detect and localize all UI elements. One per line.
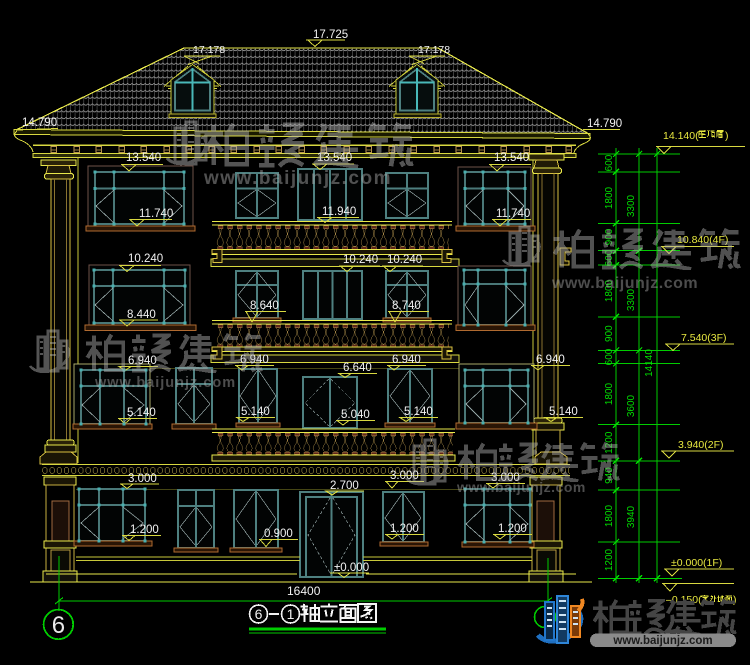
svg-text:3600: 3600	[626, 394, 637, 417]
svg-text:7.540(3F): 7.540(3F)	[681, 332, 727, 344]
svg-text:14.790: 14.790	[22, 117, 57, 129]
svg-text:1: 1	[287, 606, 295, 622]
svg-text:www.baijunjz.com: www.baijunjz.com	[203, 168, 392, 189]
svg-text:1.200: 1.200	[498, 523, 527, 535]
svg-text:17.725: 17.725	[313, 29, 348, 41]
svg-text:11.740: 11.740	[496, 208, 530, 220]
svg-text:2.700: 2.700	[330, 480, 359, 492]
svg-text:6: 6	[255, 606, 263, 622]
svg-text:6.940: 6.940	[392, 354, 421, 366]
svg-text:1800: 1800	[604, 382, 615, 405]
svg-text:3.940(2F): 3.940(2F)	[678, 439, 724, 451]
svg-text:14.790: 14.790	[587, 118, 622, 130]
svg-text:www.baijunjz.com: www.baijunjz.com	[456, 479, 586, 495]
svg-text:1200: 1200	[604, 548, 615, 571]
svg-text:±0.000: ±0.000	[334, 562, 369, 574]
svg-text:8.740: 8.740	[392, 300, 421, 312]
svg-text:10.240: 10.240	[343, 254, 378, 266]
svg-text:www.baijunjz.com: www.baijunjz.com	[612, 635, 712, 647]
svg-text:5.140: 5.140	[241, 406, 270, 418]
svg-text:5.140: 5.140	[549, 406, 578, 418]
svg-text:8.640: 8.640	[250, 300, 279, 312]
svg-text:1.200: 1.200	[390, 523, 419, 535]
svg-text:11.740: 11.740	[139, 208, 173, 220]
svg-text:1800: 1800	[604, 186, 615, 209]
svg-text:8.440: 8.440	[127, 309, 156, 321]
svg-text:5.040: 5.040	[341, 409, 370, 421]
svg-text:13.540: 13.540	[494, 152, 529, 164]
svg-text:14.140(: 14.140(	[663, 130, 699, 142]
svg-text:11.940: 11.940	[322, 206, 356, 218]
svg-text:www.baijunjz.com: www.baijunjz.com	[94, 375, 236, 391]
svg-text:0.900: 0.900	[264, 528, 293, 540]
svg-text:5.140: 5.140	[404, 406, 433, 418]
svg-text:6.940: 6.940	[536, 354, 565, 366]
svg-text:600: 600	[604, 348, 615, 365]
svg-text:±0.000(1F): ±0.000(1F)	[671, 557, 722, 569]
svg-text:3940: 3940	[626, 505, 637, 528]
svg-text:14140: 14140	[644, 349, 655, 377]
svg-text:900: 900	[604, 325, 615, 342]
svg-text:13.540: 13.540	[126, 152, 161, 164]
svg-text:3.000: 3.000	[128, 473, 157, 485]
svg-text:17.178: 17.178	[418, 44, 450, 56]
svg-text:): )	[733, 594, 737, 606]
svg-text:6: 6	[52, 612, 65, 639]
svg-text:3300: 3300	[626, 194, 637, 217]
svg-text:10.240: 10.240	[387, 254, 422, 266]
svg-text:): )	[725, 130, 729, 142]
svg-text:1.200: 1.200	[130, 524, 159, 536]
svg-text:www.baijunjz.com: www.baijunjz.com	[551, 275, 698, 292]
svg-text:16400: 16400	[287, 584, 321, 598]
svg-text:6.640: 6.640	[343, 362, 372, 374]
svg-text:10.240: 10.240	[128, 253, 163, 265]
svg-text:600: 600	[604, 154, 615, 171]
svg-text:1800: 1800	[604, 504, 615, 527]
svg-text:5.140: 5.140	[127, 407, 156, 419]
svg-text:17.178: 17.178	[193, 44, 225, 56]
